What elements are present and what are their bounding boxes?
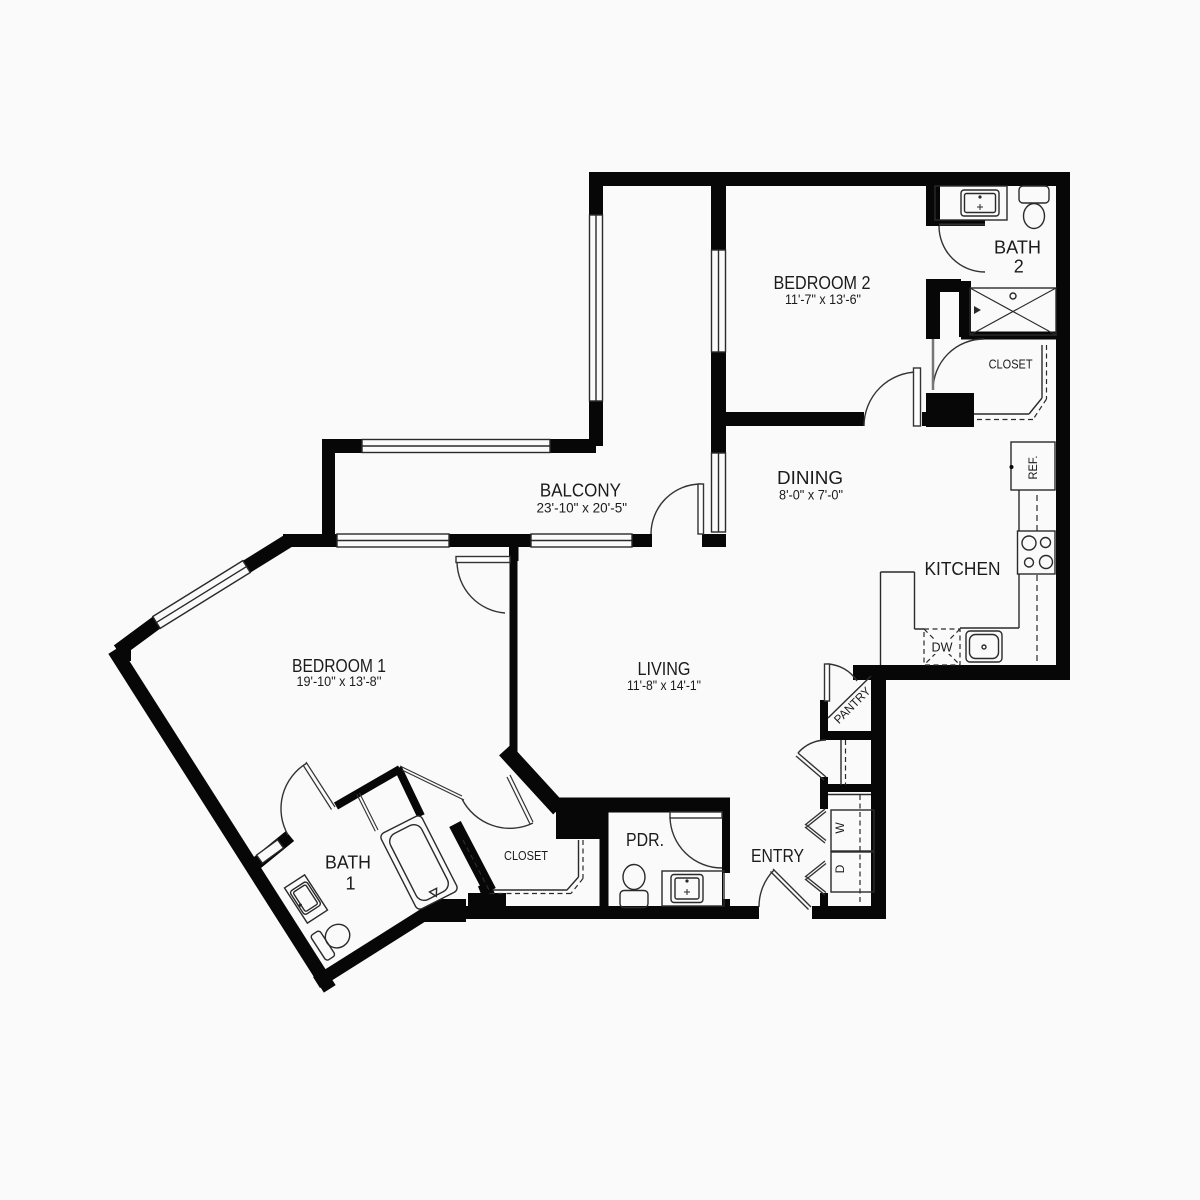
svg-text:19'-10" x 13'-8'': 19'-10" x 13'-8''	[297, 674, 382, 689]
svg-text:23'-10" x 20'-5": 23'-10" x 20'-5"	[537, 500, 628, 515]
svg-text:11'-8" x 14'-1": 11'-8" x 14'-1"	[627, 678, 701, 693]
svg-text:DINING: DINING	[777, 468, 843, 488]
svg-text:1: 1	[345, 874, 355, 894]
svg-text:11'-7" x 13'-6": 11'-7" x 13'-6"	[785, 292, 861, 307]
svg-text:LIVING: LIVING	[638, 659, 691, 679]
svg-text:KITCHEN: KITCHEN	[925, 559, 1001, 579]
svg-text:PDR.: PDR.	[626, 830, 664, 850]
svg-text:W: W	[833, 822, 847, 834]
svg-text:CLOSET: CLOSET	[989, 357, 1033, 372]
svg-text:2: 2	[1014, 257, 1024, 277]
svg-text:BATH: BATH	[325, 853, 371, 873]
svg-text:D: D	[833, 864, 847, 873]
svg-text:BEDROOM 1: BEDROOM 1	[292, 656, 386, 676]
svg-text:CLOSET: CLOSET	[504, 848, 548, 863]
svg-text:REF.: REF.	[1026, 456, 1040, 480]
svg-text:ENTRY: ENTRY	[751, 846, 804, 866]
svg-text:BEDROOM 2: BEDROOM 2	[774, 273, 871, 293]
svg-text:BALCONY: BALCONY	[540, 481, 621, 501]
svg-text:DW: DW	[932, 640, 954, 655]
svg-text:BATH: BATH	[994, 238, 1041, 258]
svg-text:8'-0" x 7'-0": 8'-0" x 7'-0"	[779, 488, 843, 503]
